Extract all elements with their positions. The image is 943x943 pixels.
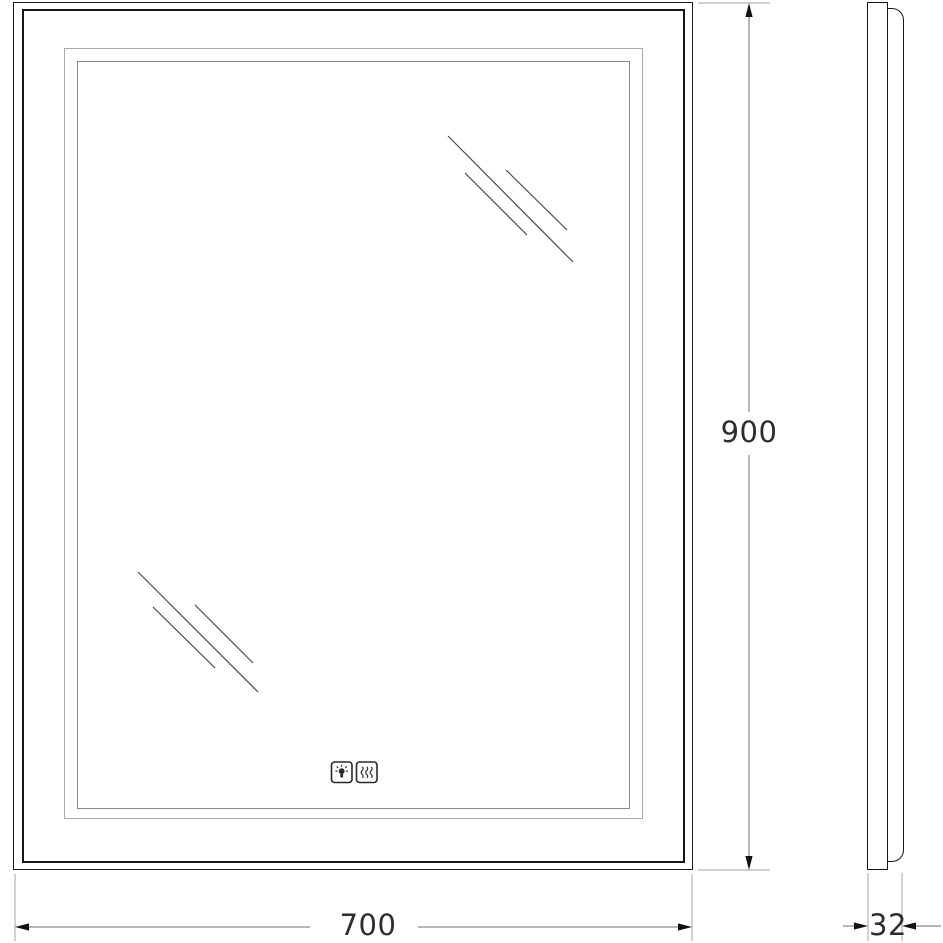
side-view-glass-panel	[867, 2, 888, 870]
arrow-inward-right-icon	[854, 922, 868, 929]
arrow-down-icon	[745, 856, 752, 870]
mirror-technical-drawing: 900 700 32	[0, 0, 943, 943]
arrow-right-icon	[678, 923, 692, 930]
side-view-backing-frame	[887, 8, 904, 862]
arrow-up-icon	[745, 3, 752, 17]
depth-dimension-label: 32	[869, 910, 901, 940]
led-zone-inner-line	[77, 61, 630, 809]
arrow-left-icon	[15, 923, 29, 930]
width-dimension-label: 700	[333, 910, 403, 940]
height-dimension-label: 900	[714, 417, 784, 447]
